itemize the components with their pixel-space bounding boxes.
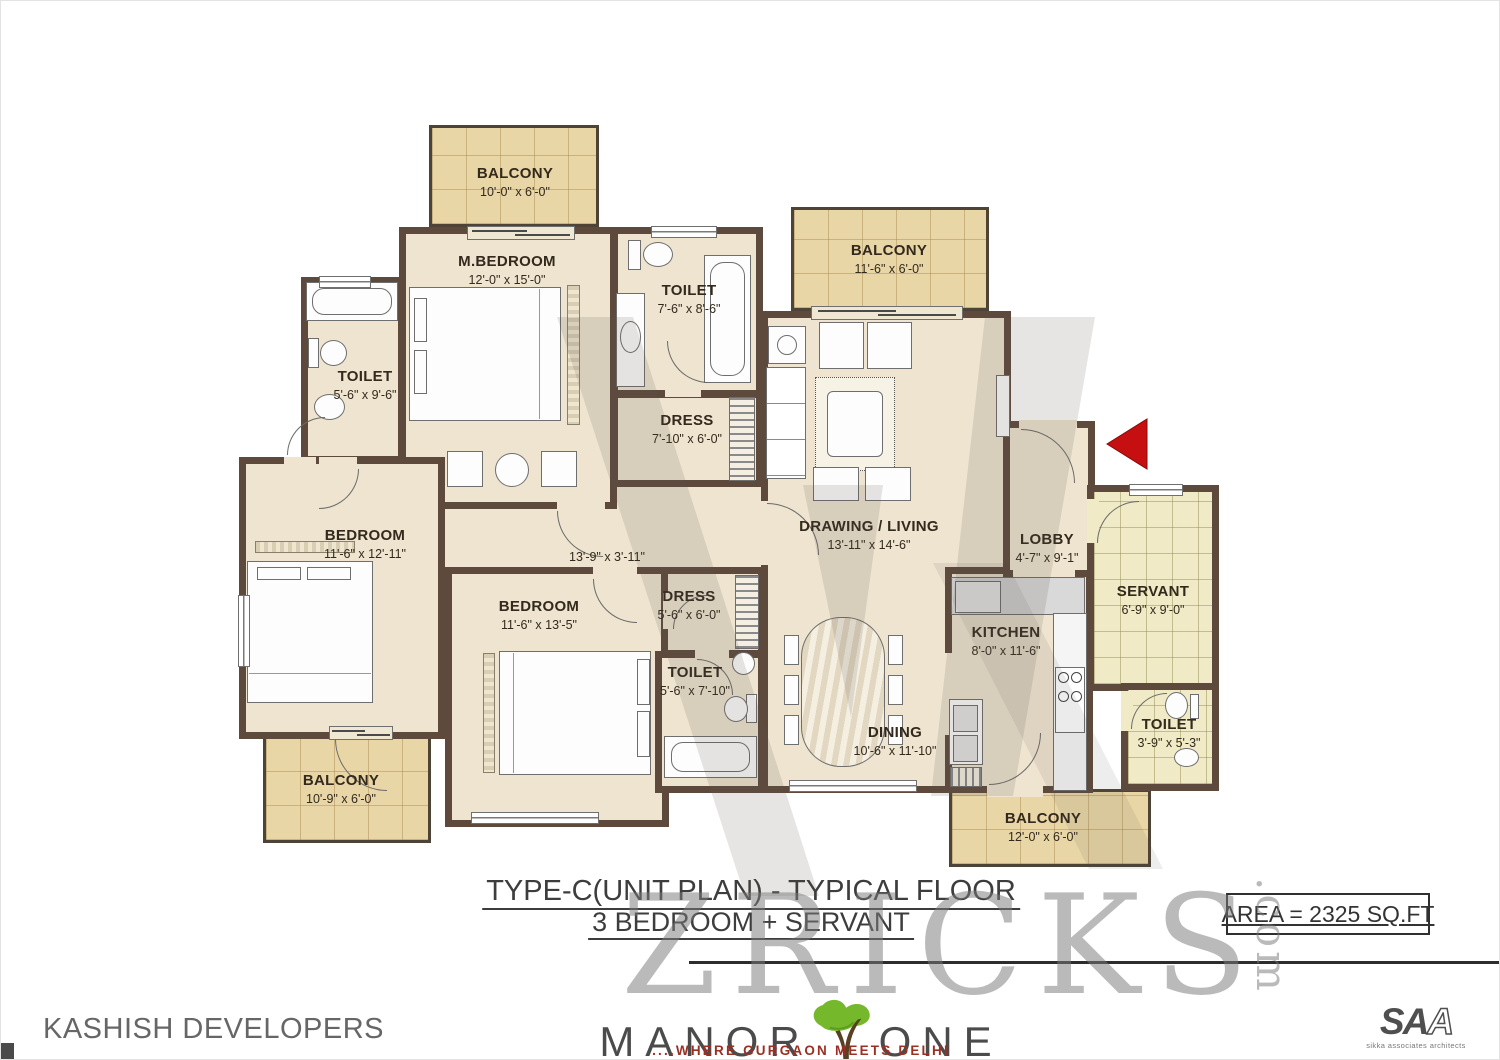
wc-tank xyxy=(308,338,319,368)
washbasin xyxy=(620,321,641,353)
room-label-bedroom-left: BEDROOM11'-6" x 12'-11" xyxy=(324,526,406,562)
area-box: AREA = 2325 SQ.FT xyxy=(1226,893,1430,935)
plan-title-line2: 3 BEDROOM + SERVANT xyxy=(588,907,914,940)
dining-chair xyxy=(888,675,903,705)
wardrobe xyxy=(729,397,755,481)
table-fan-symbol xyxy=(777,335,797,355)
burner-icon xyxy=(1071,672,1082,683)
pillow xyxy=(307,567,351,580)
console-table xyxy=(996,375,1010,437)
room-label-drawing-living: DRAWING / LIVING13'-11" x 14'-6" xyxy=(799,517,939,553)
bed-fold-line xyxy=(249,673,371,674)
bed-fold-line xyxy=(513,653,514,773)
room-label-balcony-tr: BALCONY11'-6" x 6'-0" xyxy=(851,241,927,277)
door-opening xyxy=(557,497,605,511)
bathtub-inner xyxy=(312,288,392,315)
sliding-door xyxy=(811,306,963,320)
pillow xyxy=(414,350,427,394)
architect-logo-solid: SA xyxy=(1380,1001,1427,1042)
door-arc xyxy=(287,417,325,455)
sofa-seat xyxy=(865,467,911,501)
window xyxy=(471,812,599,824)
burner-icon xyxy=(1058,691,1069,702)
wc-bowl xyxy=(643,242,673,267)
washbasin xyxy=(1174,748,1199,767)
page-corner-mark xyxy=(1,1043,14,1060)
wc-bowl xyxy=(724,696,748,722)
bed xyxy=(247,561,373,703)
window xyxy=(319,276,371,288)
room-label-dress-2: DRESS5'-6" x 6'-0" xyxy=(658,587,721,623)
dining-chair xyxy=(784,635,799,665)
bathtub-inner xyxy=(671,742,750,772)
room-label-dining: DINING10'-6" x 11'-10" xyxy=(854,723,937,759)
room-label-passage: 13'-9" x 3'-11" xyxy=(569,549,645,565)
room-label-servant: SERVANT6'-9" x 9'-0" xyxy=(1117,582,1189,618)
room-label-balcony-bl: BALCONY10'-9" x 6'-0" xyxy=(303,771,379,807)
window xyxy=(789,780,917,792)
sofa-seat xyxy=(819,322,864,369)
sink-bowl xyxy=(953,735,978,762)
wc-tank xyxy=(628,240,641,270)
burner-icon xyxy=(1071,691,1082,702)
door-opening xyxy=(284,457,316,471)
room-label-toilet-mid: TOILET5'-6" x 7'-10" xyxy=(660,663,730,699)
door-opening xyxy=(665,383,701,397)
plan-title-line1: TYPE-C(UNIT PLAN) - TYPICAL FLOOR xyxy=(482,875,1020,910)
room-label-toilet-servant: TOILET3'-9" x 5'-3" xyxy=(1138,715,1201,751)
drain-board xyxy=(950,767,982,787)
chair xyxy=(447,451,483,487)
window xyxy=(1129,484,1183,496)
sofa xyxy=(766,367,806,479)
room-label-lobby: LOBBY4'-7" x 9'-1" xyxy=(1016,530,1079,566)
architect-label: sikka associates architects xyxy=(1361,1041,1471,1050)
room-label-balcony-br: BALCONY12'-0" x 6'-0" xyxy=(1005,809,1081,845)
washbasin xyxy=(732,652,755,675)
room-label-dress-1: DRESS7'-10" x 6'-0" xyxy=(652,411,722,447)
round-table xyxy=(495,453,529,487)
window xyxy=(238,595,250,667)
pillow xyxy=(257,567,301,580)
room-label-kitchen: KITCHEN8'-0" x 11'-6" xyxy=(971,623,1040,659)
pillow xyxy=(637,659,650,705)
entrance-arrow-icon xyxy=(1107,419,1147,469)
architect-logo: SAA sikka associates architects xyxy=(1361,1003,1471,1050)
sofa-seat xyxy=(813,467,859,501)
pillow xyxy=(414,298,427,342)
plan-subtitle: 3 BEDROOM + SERVANT xyxy=(588,907,914,938)
room-label-balcony-tl: BALCONY10'-0" x 6'-0" xyxy=(477,164,553,200)
wardrobe xyxy=(735,575,759,649)
room-label-toilet-left: TOILET5'-6" x 9'-6" xyxy=(334,367,397,403)
wc-bowl xyxy=(320,340,347,366)
sink-bowl xyxy=(953,705,978,732)
bathtub-inner xyxy=(710,262,745,376)
room-label-toilet-top: TOILET7'-6" x 8'-6" xyxy=(658,281,721,317)
plan-title: TYPE-C(UNIT PLAN) - TYPICAL FLOOR xyxy=(482,875,1020,908)
brand-tagline: ....WHERE GURGAON MEETS DELHI xyxy=(652,1043,950,1058)
burner-icon xyxy=(1058,672,1069,683)
rug xyxy=(567,285,580,425)
dining-chair xyxy=(784,715,799,745)
developer-name: KASHISH DEVELOPERS xyxy=(43,1013,384,1046)
chair xyxy=(541,451,577,487)
bed xyxy=(499,651,651,775)
bed-fold-line xyxy=(539,289,540,419)
room-label-mbedroom: M.BEDROOM12'-0" x 15'-0" xyxy=(458,252,556,288)
window xyxy=(651,226,717,238)
fridge xyxy=(955,581,1001,613)
architect-logo-outline: A xyxy=(1427,1001,1452,1042)
sliding-door xyxy=(329,726,393,740)
pillow xyxy=(637,711,650,757)
room-label-bedroom-2: BEDROOM11'-6" x 13'-5" xyxy=(499,597,579,633)
sliding-door xyxy=(467,226,575,240)
sofa-seat xyxy=(867,322,912,369)
dining-chair xyxy=(784,675,799,705)
dining-chair xyxy=(888,635,903,665)
area-label: AREA = 2325 SQ.FT xyxy=(1222,901,1435,928)
floor-plan-sheet: BALCONY10'-0" x 6'-0" M.BEDROOM12'-0" x … xyxy=(0,0,1500,1060)
door-opening xyxy=(987,785,1043,797)
footer-separator xyxy=(689,961,1500,964)
rug-inner xyxy=(827,391,883,457)
rug xyxy=(483,653,495,773)
